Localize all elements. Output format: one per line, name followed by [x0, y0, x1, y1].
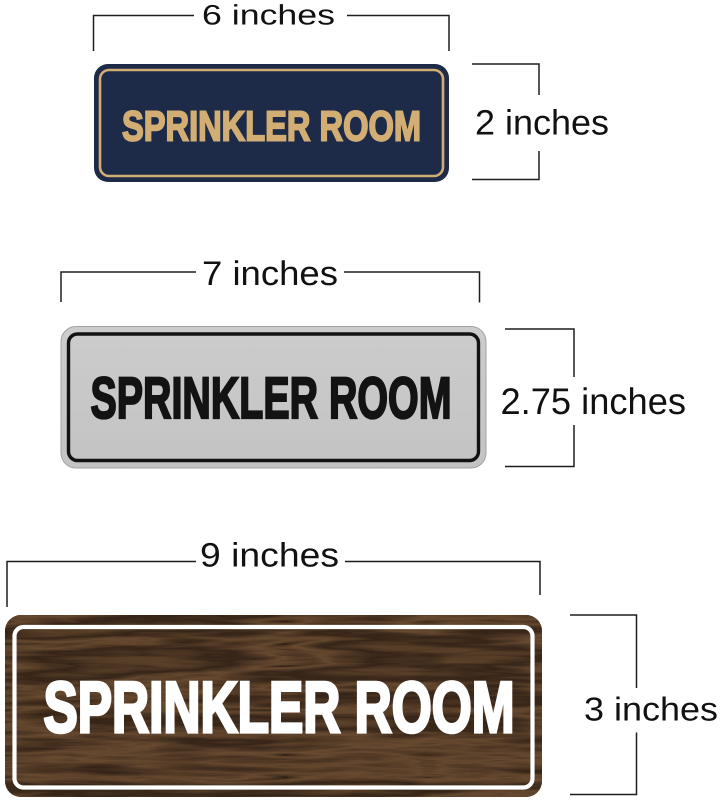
svg-text:3 inches: 3 inches [584, 692, 718, 729]
svg-text:2.75 inches: 2.75 inches [501, 381, 687, 422]
svg-text:SPRINKLER ROOM: SPRINKLER ROOM [122, 103, 421, 150]
svg-text:6 inches: 6 inches [202, 0, 335, 31]
svg-text:7 inches: 7 inches [202, 255, 338, 293]
svg-text:9 inches: 9 inches [200, 537, 339, 575]
svg-text:SPRINKLER ROOM: SPRINKLER ROOM [91, 366, 452, 431]
svg-text:2 inches: 2 inches [475, 104, 609, 143]
svg-text:SPRINKLER ROOM: SPRINKLER ROOM [44, 668, 515, 748]
